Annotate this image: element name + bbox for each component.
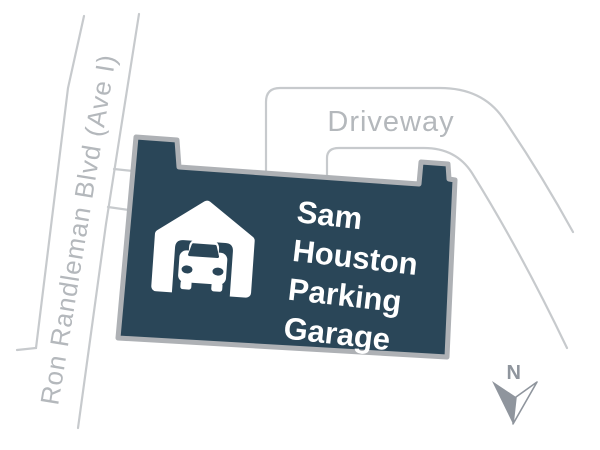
road-building-connector-top (114, 169, 133, 171)
car-wheel-left (180, 280, 192, 290)
car-wheel-right (211, 282, 223, 292)
car-windshield (190, 245, 219, 257)
building-label-line-1: Sam (295, 194, 364, 236)
road-building-connector-bottom (108, 207, 129, 210)
driveway-label: Driveway (327, 106, 454, 138)
north-arrow-icon: N (492, 362, 537, 424)
compass-n-label: N (507, 362, 522, 384)
campus-map: Ron Randleman Blvd (Ave I) Driveway Sam … (0, 0, 600, 450)
compass-arrow-solid-half (492, 381, 516, 424)
map-canvas: Ron Randleman Blvd (Ave I) Driveway Sam … (0, 0, 600, 450)
compass-arrow-outline-half (513, 382, 537, 424)
road-label-ron-randleman: Ron Randleman Blvd (Ave I) (34, 52, 122, 407)
